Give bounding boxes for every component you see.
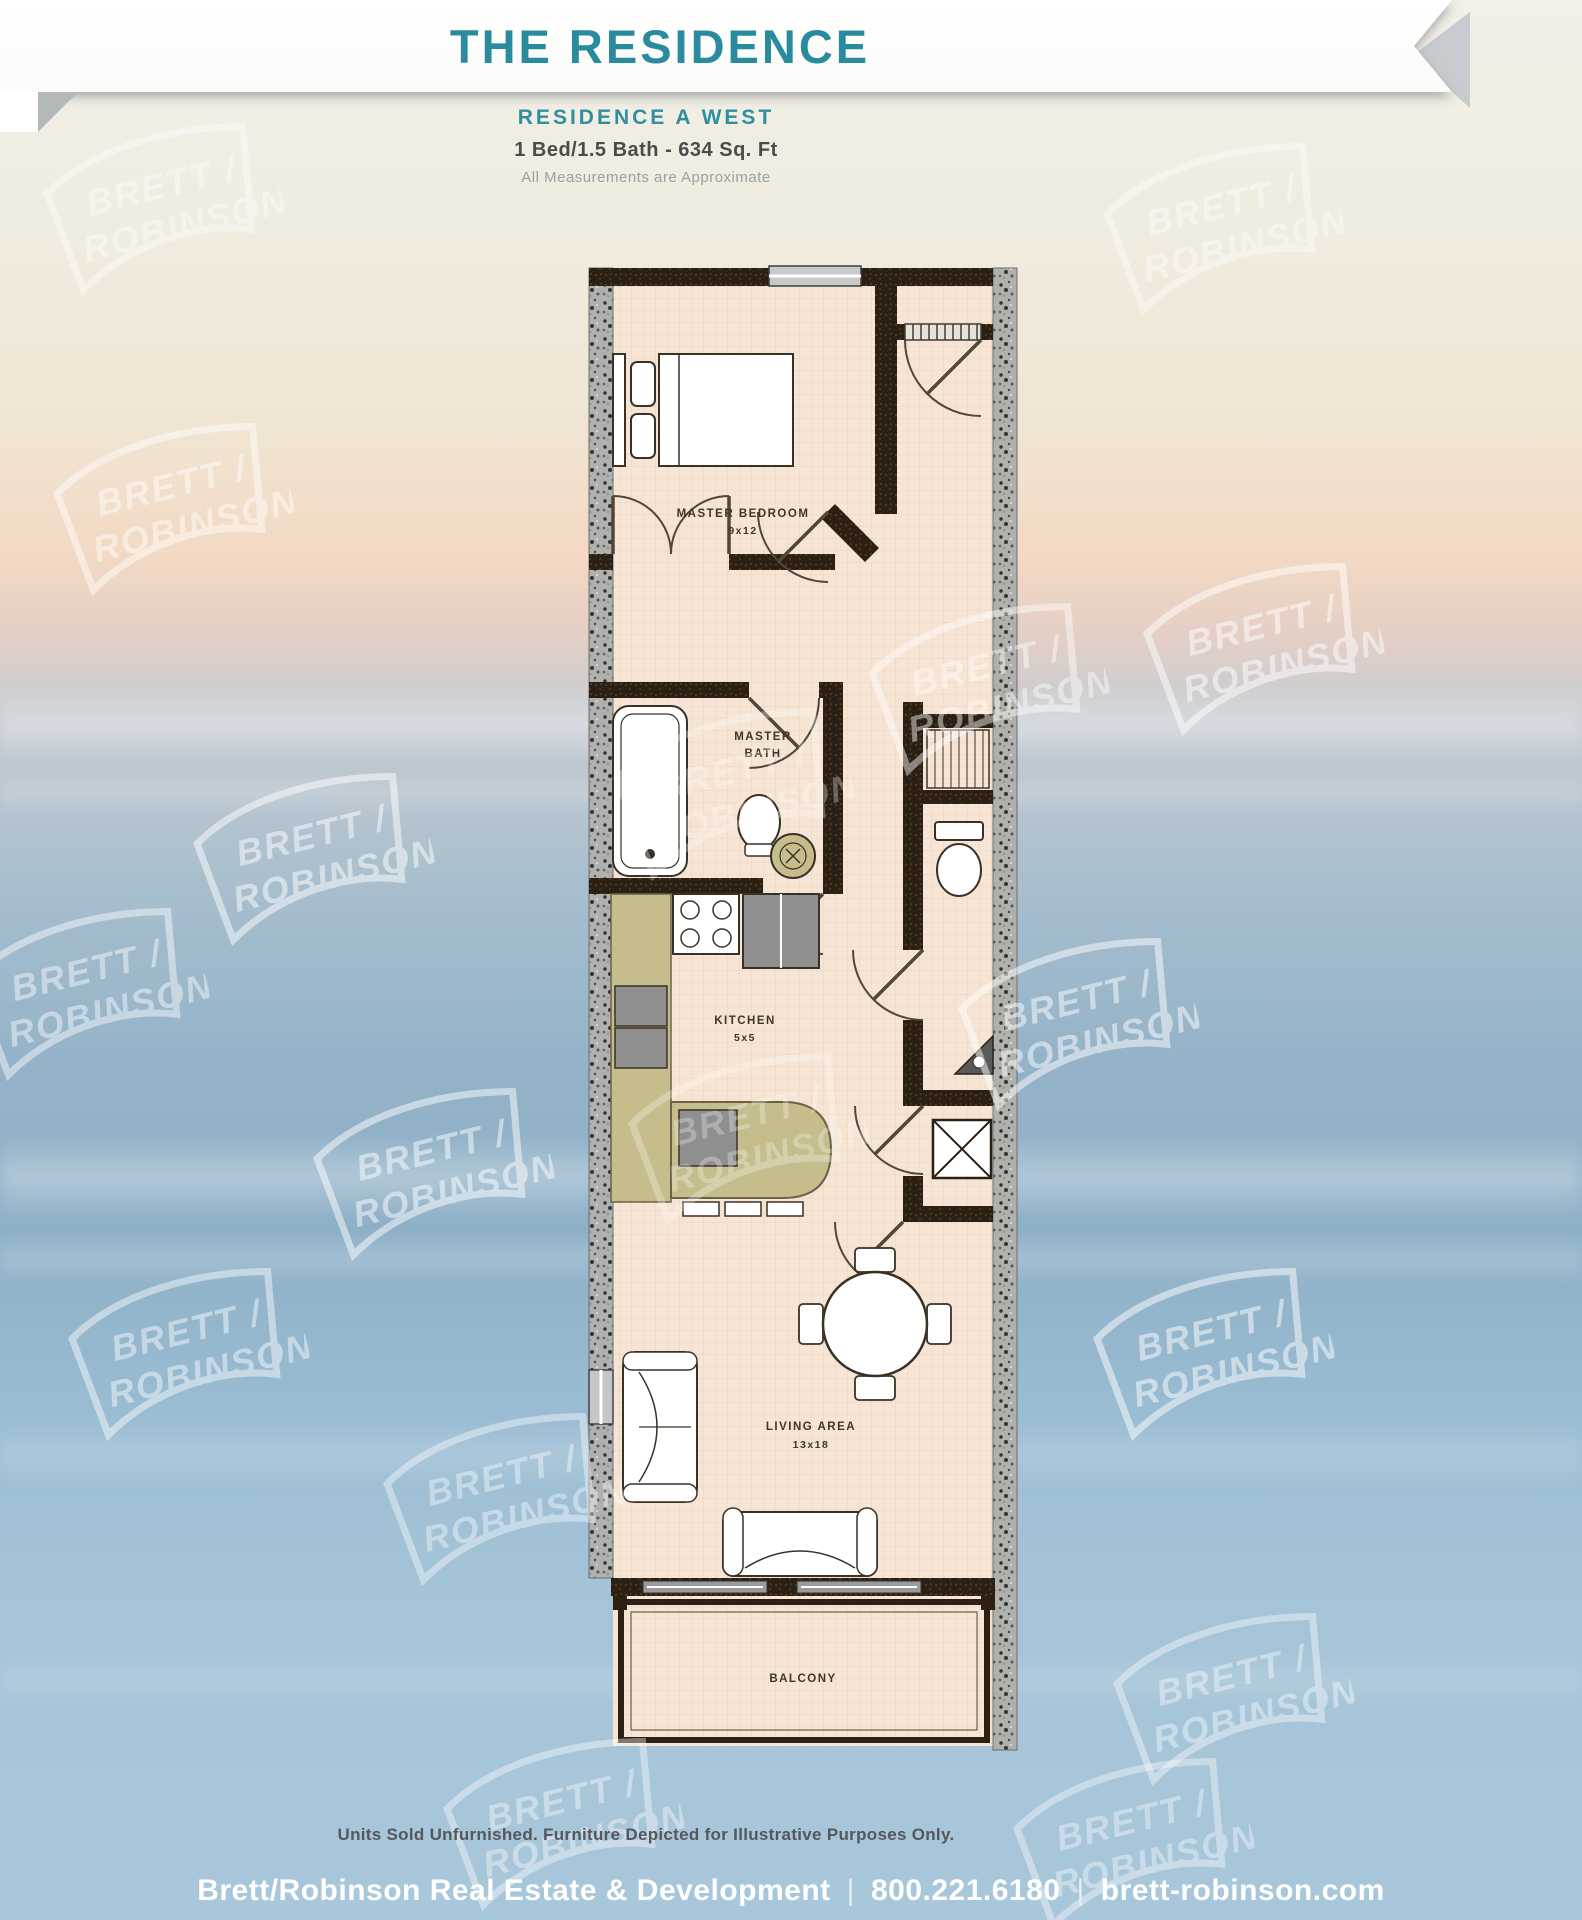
bath-hall-wall [823, 682, 843, 894]
sofa [723, 1508, 877, 1576]
water-heater [933, 1120, 991, 1178]
balcony-label: BALCONY [769, 1673, 836, 1685]
hall-east-wall [903, 1020, 923, 1106]
wall [589, 554, 613, 570]
watermark-line1: BRETT / [1052, 1781, 1213, 1859]
page-title: THE RESIDENCE [0, 19, 1320, 74]
stove [673, 894, 739, 954]
wall [923, 790, 993, 804]
wall [923, 714, 993, 728]
flag-logo-icon: BRETT / ROBINSON [23, 392, 307, 617]
wall [589, 682, 749, 698]
watermark-line2: ROBINSON [229, 829, 443, 920]
watermark-line2: ROBINSON [104, 1324, 318, 1415]
separator: | [1060, 1874, 1100, 1907]
master-bedroom-label: MASTER BEDROOM [677, 508, 810, 520]
master-bath-label-1: MASTER [734, 731, 792, 743]
footer-contact: Brett/Robinson Real Estate & Development… [0, 1874, 1582, 1908]
watermark-line1: BRETT / [7, 931, 168, 1009]
brett-robinson-watermark: BRETT / ROBINSON [23, 392, 307, 617]
brett-robinson-watermark: BRETT / ROBINSON [0, 877, 222, 1102]
master-bath-label-2: BATH [744, 748, 781, 760]
kitchen-island [671, 1102, 831, 1198]
plan-header: RESIDENCE A WEST 1 Bed/1.5 Bath - 634 Sq… [0, 106, 1292, 186]
hall-east-wall [903, 1176, 923, 1222]
right-exterior-wall [993, 268, 1017, 1750]
bedroom-hall-wall [875, 268, 897, 514]
living-area-dims: 13x18 [793, 1439, 830, 1451]
wall [897, 324, 905, 340]
kitchen-dims: 5x5 [734, 1032, 756, 1044]
flyer-page: BRETT / ROBINSON BRETT / ROBINSON BRETT … [0, 0, 1582, 1920]
watermark-line1: BRETT / [92, 446, 253, 524]
wall [981, 324, 993, 340]
wall [589, 878, 763, 894]
separator: | [831, 1874, 871, 1907]
watermark-line2: ROBINSON [1129, 1324, 1343, 1415]
watermark-line2: ROBINSON [1139, 199, 1353, 290]
master-bedroom-dims: 9x12 [728, 525, 757, 537]
floor-plan: MASTER BEDROOM 9x12 MASTER BATH KITCHEN … [583, 262, 1023, 1762]
website-url: brett-robinson.com [1101, 1874, 1385, 1907]
hall-east-wall [903, 702, 923, 950]
watermark-line2: ROBINSON [79, 179, 293, 270]
bathtub [613, 706, 687, 876]
watermark-line2: ROBINSON [4, 964, 218, 1055]
kitchen-label: KITCHEN [714, 1015, 776, 1027]
watermark-line1: BRETT / [1182, 586, 1343, 664]
plan-name: RESIDENCE A WEST [0, 106, 1292, 130]
bar-stools [683, 1202, 803, 1216]
sliding-door [797, 1581, 921, 1593]
watermark-line2: ROBINSON [994, 994, 1208, 1085]
watermark-line1: BRETT / [1132, 1291, 1293, 1369]
entry-threshold [905, 324, 981, 340]
half-bath-toilet [935, 822, 983, 896]
sliding-door [643, 1581, 767, 1593]
plan-note: All Measurements are Approximate [0, 169, 1292, 186]
wall [923, 1090, 993, 1106]
footer-disclaimer: Units Sold Unfurnished. Furniture Depict… [0, 1825, 1292, 1845]
wall [923, 1206, 993, 1222]
balcony-floor [613, 1596, 993, 1746]
window [769, 266, 861, 286]
watermark-line2: ROBINSON [89, 479, 303, 570]
phone-number: 800.221.6180 [871, 1874, 1061, 1907]
company-name: Brett/Robinson Real Estate & Development [197, 1874, 830, 1907]
watermark-line1: BRETT / [107, 1291, 268, 1369]
header-ribbon: THE RESIDENCE [0, 0, 1452, 92]
flag-logo-icon: BRETT / ROBINSON [0, 877, 222, 1102]
plan-specs: 1 Bed/1.5 Bath - 634 Sq. Ft [0, 139, 1292, 162]
loveseat [623, 1352, 697, 1502]
living-area-label: LIVING AREA [766, 1421, 856, 1433]
ribbon-band: THE RESIDENCE [0, 0, 1452, 92]
refrigerator [743, 894, 819, 968]
window [589, 1370, 613, 1424]
floor-plan-svg: MASTER BEDROOM 9x12 MASTER BATH KITCHEN … [583, 262, 1023, 1762]
bath-sink [771, 834, 815, 878]
island-sink [679, 1110, 737, 1166]
